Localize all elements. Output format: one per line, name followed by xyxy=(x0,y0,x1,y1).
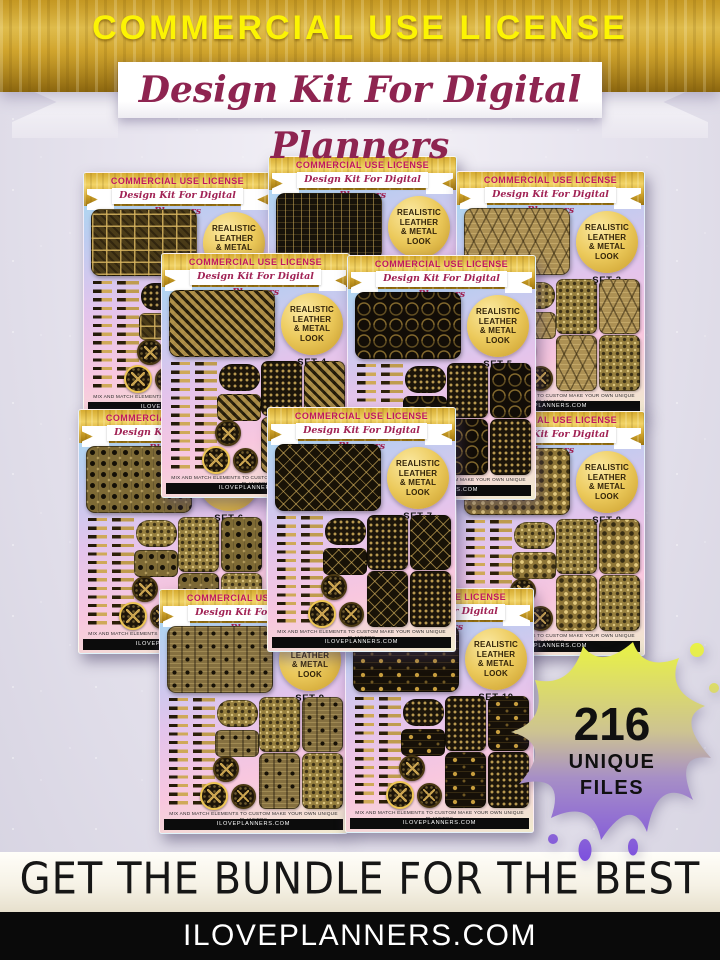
card-title-ribbon: Design Kit For Digital Planners xyxy=(296,423,427,440)
swatch-tile xyxy=(599,575,640,631)
badge-line: & METAL xyxy=(480,326,516,336)
swatch-tile xyxy=(259,753,300,809)
pill-swatch xyxy=(514,522,555,549)
file-count-word2: FILES xyxy=(580,777,644,799)
rect-swatch xyxy=(323,548,367,575)
rect-swatch xyxy=(512,552,556,579)
card-license-title: COMMERCIAL USE LICENSE xyxy=(268,411,455,421)
card-license-title: COMMERCIAL USE LICENSE xyxy=(84,176,271,186)
main-swatch xyxy=(275,444,381,511)
badge-line: & METAL xyxy=(294,324,330,334)
swatch-tile xyxy=(556,335,597,391)
badge-line: REALISTIC xyxy=(212,224,256,234)
realistic-look-badge: REALISTIC LEATHER & METAL LOOK xyxy=(388,196,450,258)
button-swatch xyxy=(399,755,425,781)
card-title-ribbon: Design Kit For Digital Planners xyxy=(112,188,243,205)
splat-drip-icon xyxy=(628,839,638,856)
product-listing-graphic: COMMERCIAL USE LICENSE Design Kit For Di… xyxy=(0,0,720,960)
badge-line: REALISTIC xyxy=(585,463,629,473)
binding-coils-column xyxy=(355,697,374,807)
main-swatch xyxy=(276,193,382,260)
card-license-title: COMMERCIAL USE LICENSE xyxy=(162,257,349,267)
swatch-tile xyxy=(445,752,486,808)
button-swatch xyxy=(200,782,228,810)
realistic-look-badge: REALISTIC LEATHER & METAL LOOK xyxy=(467,295,529,357)
button-swatch xyxy=(231,784,256,809)
button-swatch xyxy=(339,602,364,627)
splat-droplet-icon xyxy=(709,683,719,693)
rect-swatch xyxy=(217,394,261,421)
website-url: ILOVEPLANNERS.COM xyxy=(0,912,720,960)
pill-swatch xyxy=(219,364,260,391)
badge-line: & METAL xyxy=(292,660,328,670)
pill-swatch xyxy=(217,700,258,727)
badge-line: LOOK xyxy=(407,237,431,247)
button-swatch xyxy=(119,602,147,630)
swatch-tile xyxy=(259,697,300,752)
rect-swatch xyxy=(134,550,178,577)
swatch-tile xyxy=(556,279,597,334)
badge-line: LOOK xyxy=(595,492,619,502)
card-footer-domain: ILOVEPLANNERS.COM xyxy=(272,637,451,648)
button-swatch xyxy=(386,781,414,809)
badge-line: LOOK xyxy=(300,334,324,344)
splat-drip-icon xyxy=(579,839,592,861)
badge-line: & METAL xyxy=(589,482,625,492)
button-swatch xyxy=(213,756,239,782)
rect-swatch xyxy=(215,730,259,757)
swatch-tile xyxy=(445,696,486,751)
swatch-tile xyxy=(556,575,597,631)
badge-line: REALISTIC xyxy=(396,459,440,469)
realistic-look-badge: REALISTIC LEATHER & METAL LOOK xyxy=(281,293,343,355)
website-bar: ILOVEPLANNERS.COM xyxy=(0,912,720,960)
card-title-ribbon: Design Kit For Digital Planners xyxy=(485,187,616,204)
file-count: 216 xyxy=(574,698,651,750)
badge-line: & METAL xyxy=(216,243,252,253)
swatch-tile xyxy=(490,363,531,418)
button-swatch xyxy=(137,339,163,365)
file-count-word1: UNIQUE xyxy=(569,751,656,773)
main-swatch xyxy=(169,290,275,357)
button-swatch xyxy=(132,576,158,602)
realistic-look-badge: REALISTIC LEATHER & METAL LOOK xyxy=(576,451,638,513)
button-swatch xyxy=(215,420,241,446)
badge-line: LEATHER xyxy=(479,317,518,327)
set-preview-card: COMMERCIAL USE LICENSE Design Kit For Di… xyxy=(267,407,456,652)
binding-coils-column xyxy=(171,362,190,472)
splat-droplet-icon xyxy=(548,834,558,844)
badge-line: LOOK xyxy=(406,488,430,498)
main-swatch xyxy=(167,626,273,693)
bundle-splat: 216 UNIQUE FILES xyxy=(497,634,719,866)
swatch-tile xyxy=(599,335,640,391)
card-license-title: COMMERCIAL USE LICENSE xyxy=(457,175,644,185)
binding-coils-column xyxy=(88,518,107,628)
button-swatch xyxy=(417,783,442,808)
badge-line: REALISTIC xyxy=(290,305,334,315)
main-swatch xyxy=(355,292,461,359)
badge-line: LEATHER xyxy=(399,469,438,479)
badge-line: LOOK xyxy=(298,670,322,680)
binding-coils-column xyxy=(93,281,112,391)
button-swatch xyxy=(308,600,336,628)
card-footer-domain: ILOVEPLANNERS.COM xyxy=(164,819,343,830)
swatch-tile xyxy=(302,697,343,752)
swatch-tile xyxy=(367,571,408,627)
card-title-ribbon: Design Kit For Digital Planners xyxy=(190,269,321,286)
badge-line: LOOK xyxy=(595,252,619,262)
badge-line: & METAL xyxy=(401,227,437,237)
title-ribbon: Design Kit For Digital Planners xyxy=(118,62,602,118)
swatch-tile xyxy=(556,519,597,574)
card-license-title: COMMERCIAL USE LICENSE xyxy=(348,259,535,269)
swatch-tile xyxy=(302,753,343,809)
swatch-tile xyxy=(599,279,640,334)
badge-line: LEATHER xyxy=(215,234,254,244)
badge-line: LOOK xyxy=(486,336,510,346)
realistic-look-badge: REALISTIC LEATHER & METAL LOOK xyxy=(387,447,449,509)
swatch-tile xyxy=(221,517,262,572)
button-swatch xyxy=(124,365,152,393)
swatch-tile xyxy=(178,517,219,572)
swatch-tile xyxy=(410,515,451,570)
swatch-tile xyxy=(367,515,408,570)
badge-line: REALISTIC xyxy=(476,307,520,317)
badge-line: REALISTIC xyxy=(397,208,441,218)
badge-line: REALISTIC xyxy=(585,223,629,233)
card-title-ribbon: Design Kit For Digital Planners xyxy=(376,271,507,288)
button-swatch xyxy=(233,448,258,473)
badge-line: LEATHER xyxy=(588,233,627,243)
binding-coils-column xyxy=(169,698,188,808)
pill-swatch xyxy=(405,366,446,393)
license-title: COMMERCIAL USE LICENSE xyxy=(0,9,720,48)
pill-swatch xyxy=(403,699,444,726)
realistic-look-badge: REALISTIC LEATHER & METAL LOOK xyxy=(576,211,638,273)
swatch-tile xyxy=(490,419,531,475)
badge-line: LEATHER xyxy=(293,315,332,325)
binding-coils-column xyxy=(277,516,296,626)
badge-line: LEATHER xyxy=(588,473,627,483)
swatch-tile xyxy=(410,571,451,627)
badge-line: LEATHER xyxy=(400,218,439,228)
badge-line: & METAL xyxy=(589,242,625,252)
button-swatch xyxy=(321,574,347,600)
ribbon-title: Design Kit For Digital Planners xyxy=(118,62,602,174)
splat-droplet-icon xyxy=(690,643,704,657)
swatch-tile xyxy=(599,519,640,574)
rect-swatch xyxy=(401,729,445,756)
pill-swatch xyxy=(325,518,366,545)
button-swatch xyxy=(202,446,230,474)
pill-swatch xyxy=(136,520,177,547)
badge-line: & METAL xyxy=(400,478,436,488)
